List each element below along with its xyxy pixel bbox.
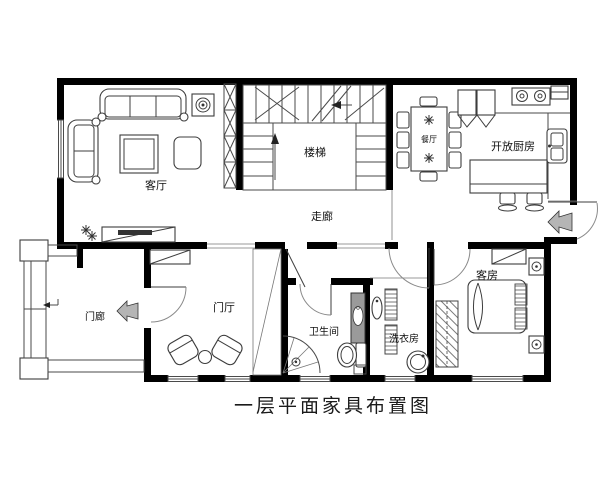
side-stool bbox=[174, 137, 201, 169]
porch-beam-bottom bbox=[48, 360, 144, 372]
openings bbox=[207, 190, 577, 278]
label-guest-room: 客房 bbox=[476, 268, 498, 282]
island-bar-counter bbox=[470, 160, 547, 193]
entry-arrow-porch bbox=[117, 301, 138, 321]
flower-side-table bbox=[192, 94, 214, 116]
tv-cabinet bbox=[102, 227, 175, 242]
foyer-armchair-left bbox=[166, 333, 201, 367]
label-laundry-room: 洗衣房 bbox=[389, 332, 419, 345]
label-corridor: 走廊 bbox=[311, 209, 333, 223]
floor-plan-drawing: 客厅 楼梯 走廊 餐厅 开放厨房 门廊 门厅 卫生间 洗衣房 客房 一层平面家具… bbox=[0, 0, 600, 480]
pillow-bottom bbox=[515, 308, 527, 329]
living-room-window bbox=[57, 120, 64, 178]
vanity-sink bbox=[351, 293, 365, 343]
nightstand-top bbox=[529, 258, 544, 275]
plan-caption: 一层平面家具布置图 bbox=[234, 395, 432, 417]
bathroom-window bbox=[300, 375, 330, 382]
foyer-entry-door bbox=[151, 287, 186, 322]
kitchen-sink bbox=[547, 129, 567, 163]
staircase bbox=[243, 85, 386, 190]
label-dining-room: 餐厅 bbox=[421, 135, 437, 144]
sofa-three-seat bbox=[98, 89, 188, 121]
guest-room-window bbox=[472, 375, 523, 382]
wardrobe bbox=[436, 301, 458, 367]
guest-room-door bbox=[434, 249, 470, 285]
label-kitchen: 开放厨房 bbox=[491, 139, 535, 153]
living-room-furniture bbox=[68, 89, 214, 242]
nightstand-bottom bbox=[529, 336, 544, 353]
corner-shower bbox=[283, 336, 320, 373]
foyer-armchair-right bbox=[210, 333, 245, 367]
bed bbox=[468, 280, 527, 333]
label-living-room: 客厅 bbox=[145, 178, 167, 192]
fridge-cabinet bbox=[551, 86, 568, 99]
under-stair-storage bbox=[253, 249, 281, 375]
laundry-door bbox=[389, 248, 429, 288]
laundry-sink bbox=[372, 297, 382, 319]
stove-cooktop bbox=[512, 88, 550, 105]
washing-machine bbox=[407, 351, 429, 373]
laundry-window bbox=[385, 375, 415, 382]
floor-plan-page: 客厅 楼梯 走廊 餐厅 开放厨房 门廊 门厅 卫生间 洗衣房 客房 一层平面家具… bbox=[0, 0, 600, 480]
coffee-table bbox=[120, 135, 158, 173]
label-bathroom: 卫生间 bbox=[309, 325, 339, 338]
label-foyer: 门厅 bbox=[213, 300, 235, 314]
stair-up-arrow bbox=[271, 133, 279, 180]
porch-column-bottom bbox=[20, 358, 48, 379]
pillow-top bbox=[515, 284, 527, 305]
entry-arrow-side bbox=[548, 211, 572, 233]
loveseat-sofa bbox=[68, 118, 100, 184]
corner-plant bbox=[81, 225, 97, 241]
label-porch: 门廊 bbox=[85, 310, 105, 323]
label-stairs: 楼梯 bbox=[304, 145, 326, 159]
shoe-cabinet bbox=[150, 250, 190, 264]
tv-set bbox=[118, 230, 152, 235]
bathroom-door bbox=[300, 284, 331, 315]
porch-column-top bbox=[20, 240, 48, 261]
round-side-table bbox=[199, 351, 212, 364]
stair-side-cabinet-hatch bbox=[224, 84, 236, 188]
porch-step-arrow bbox=[43, 299, 58, 308]
toilet bbox=[338, 343, 367, 367]
upper-cabinets bbox=[458, 90, 495, 127]
porch-steps bbox=[24, 261, 46, 358]
desk-shelf bbox=[492, 249, 526, 264]
guest-room-furniture bbox=[436, 249, 544, 367]
bar-stools bbox=[499, 193, 544, 211]
laundry-fixtures bbox=[372, 289, 429, 373]
